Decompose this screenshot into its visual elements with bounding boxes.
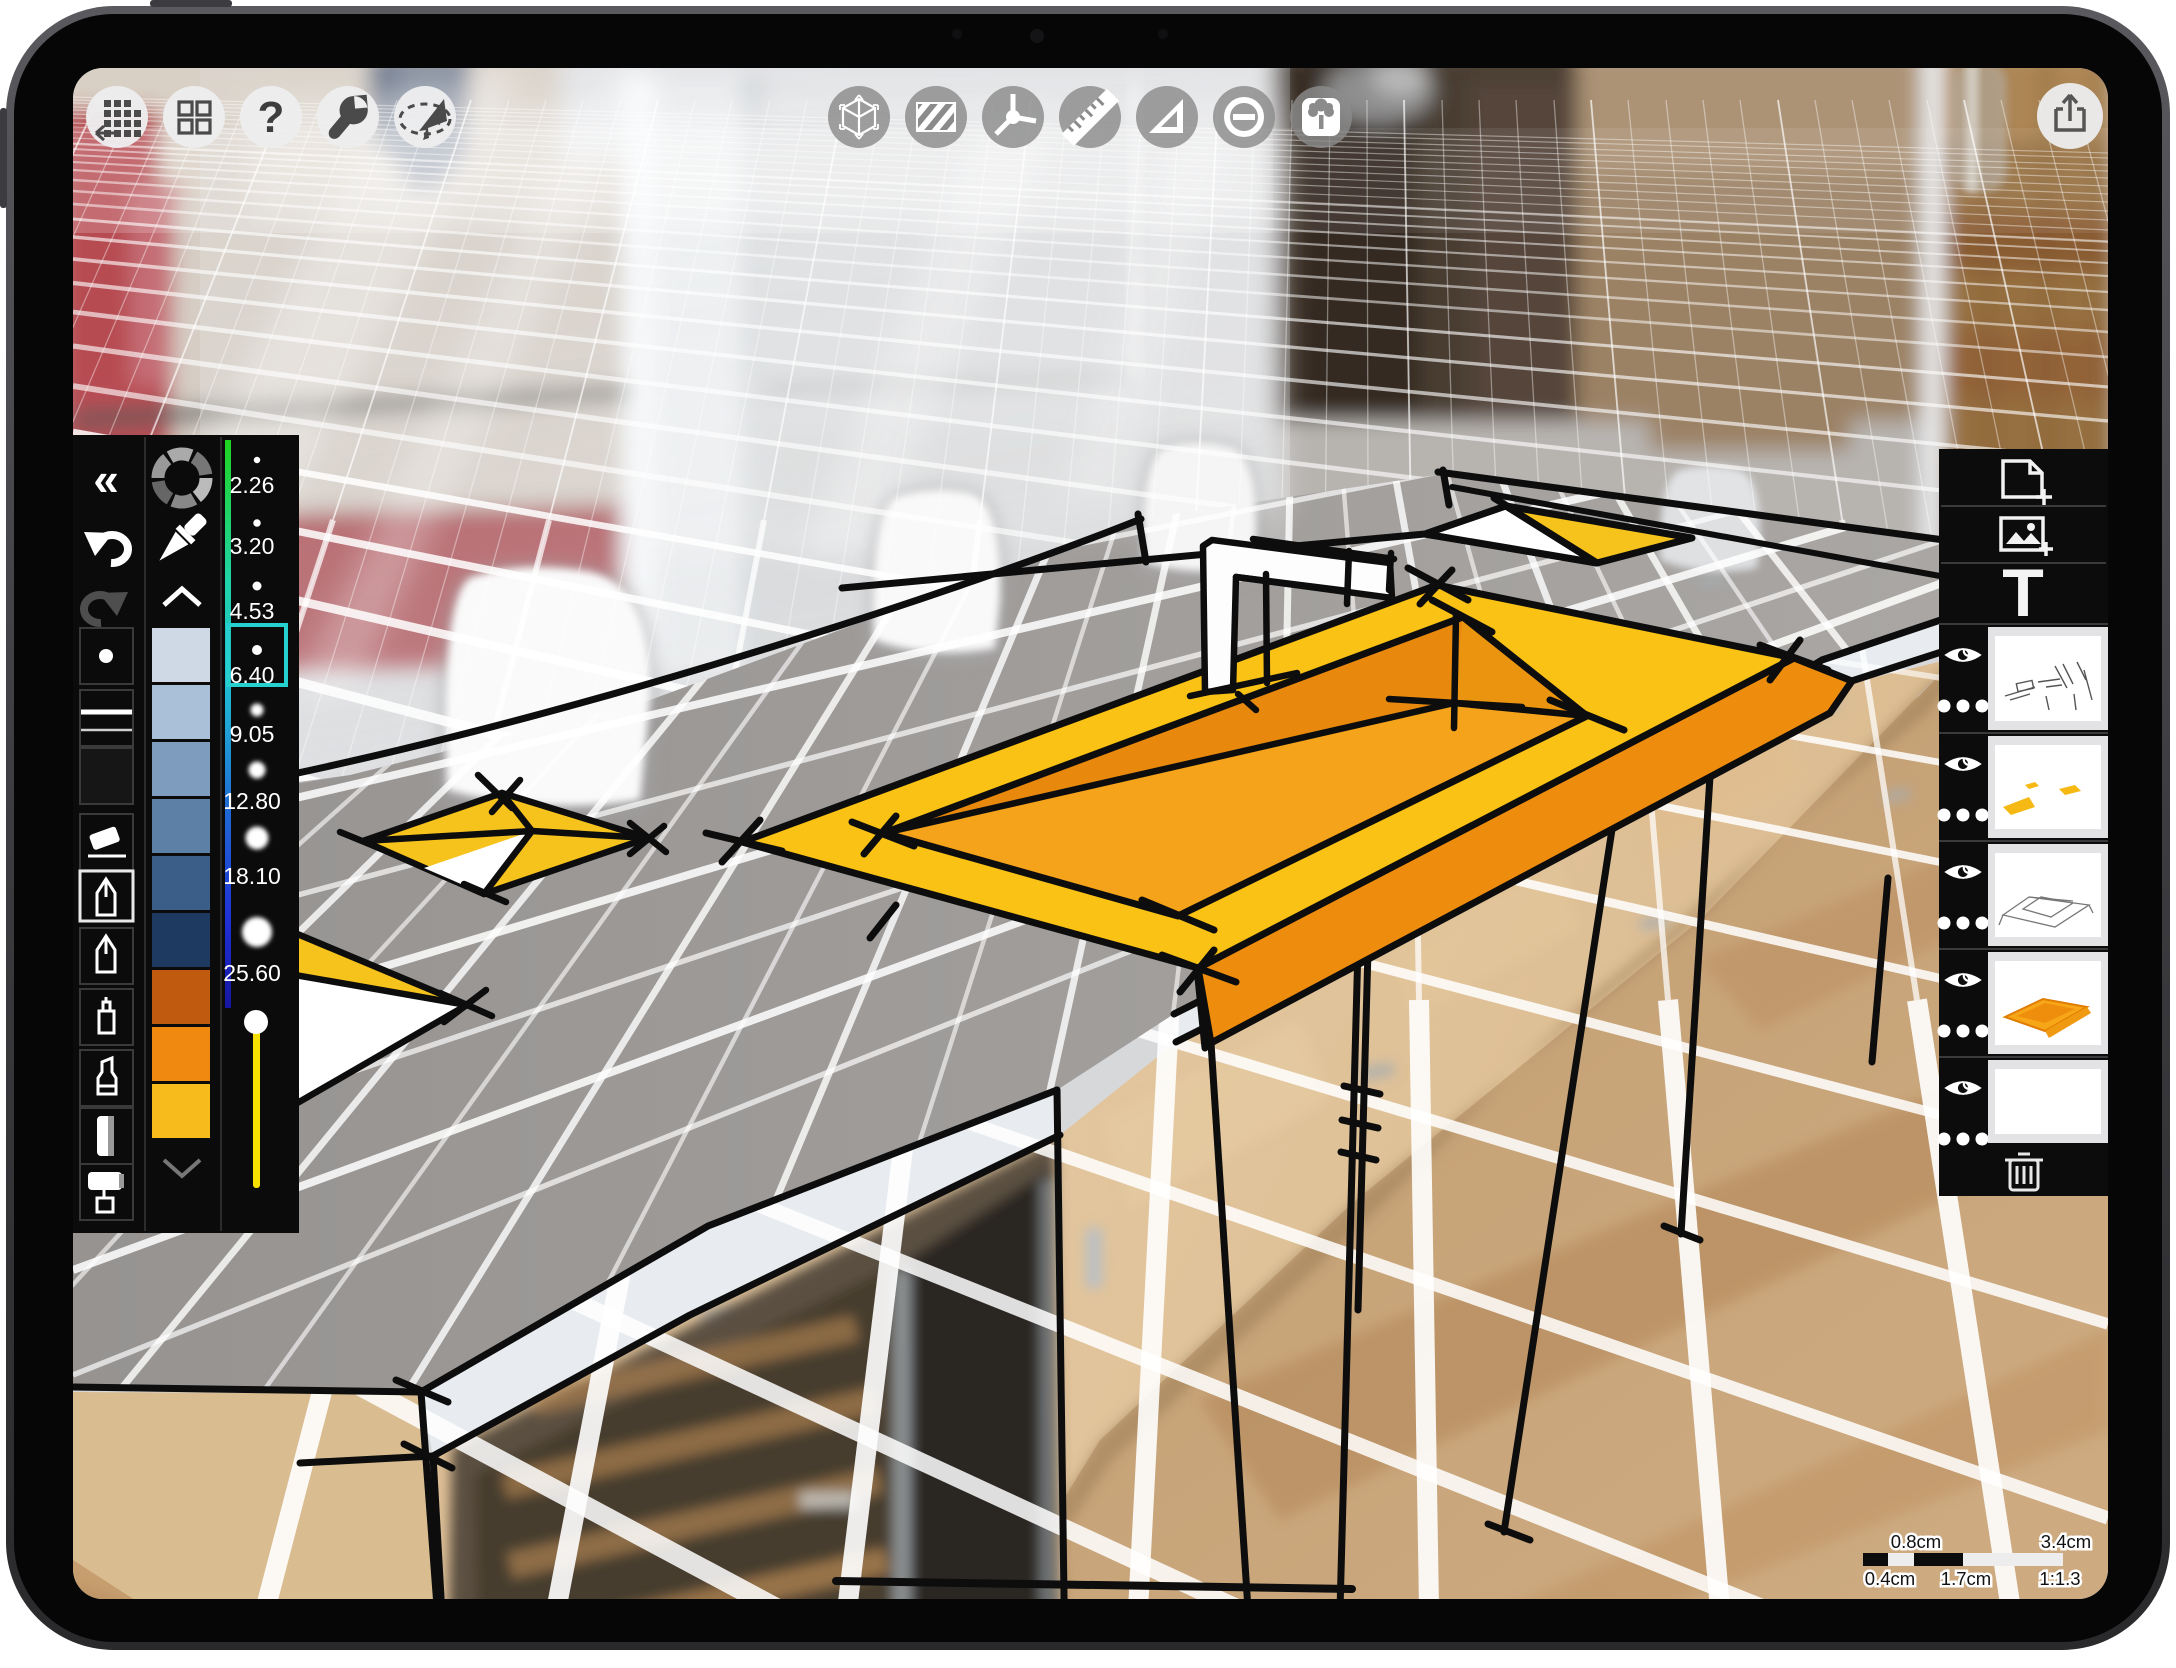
- svg-text:1:1.3: 1:1.3: [2039, 1568, 2080, 1589]
- svg-text:18.10: 18.10: [223, 863, 281, 889]
- svg-text:1.7cm: 1.7cm: [1941, 1568, 1991, 1589]
- svg-text:0.4cm: 0.4cm: [1865, 1568, 1915, 1589]
- svg-text:T: T: [2002, 555, 2044, 631]
- svg-text:3.4cm: 3.4cm: [2041, 1531, 2091, 1552]
- svg-text:«: «: [93, 453, 119, 505]
- svg-text:12.80: 12.80: [223, 788, 281, 814]
- svg-text:9.05: 9.05: [230, 721, 275, 747]
- svg-text:0.8cm: 0.8cm: [1891, 1531, 1941, 1552]
- svg-text:?: ?: [258, 93, 285, 142]
- svg-text:3.20: 3.20: [230, 533, 275, 559]
- svg-text:2.26: 2.26: [230, 472, 275, 498]
- svg-text:25.60: 25.60: [223, 960, 281, 986]
- svg-text:4.53: 4.53: [230, 598, 275, 624]
